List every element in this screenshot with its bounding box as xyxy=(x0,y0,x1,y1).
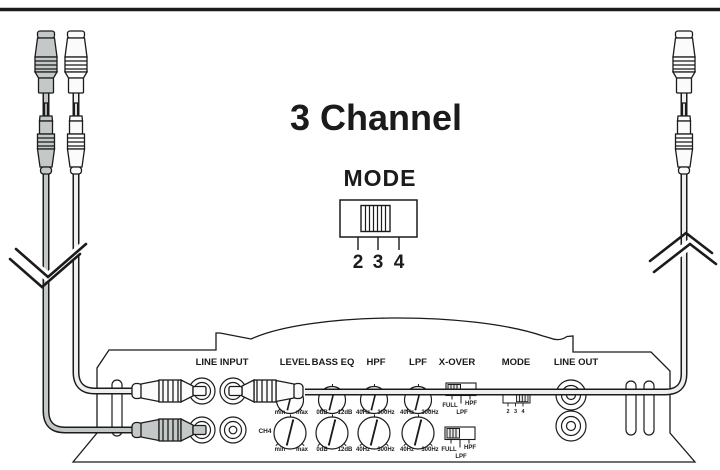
left-white-cable-run xyxy=(76,33,134,391)
mode-pos-3: 3 xyxy=(373,252,384,273)
hpf-top-min: 40Hz xyxy=(356,410,370,416)
hpf-top-max: 300Hz xyxy=(377,410,394,416)
line-out-label: LINE OUT xyxy=(554,357,599,368)
bass-bot-max: 12dB xyxy=(338,447,353,453)
source-right-plug-icon xyxy=(673,31,695,93)
bass-eq-label: BASS EQ xyxy=(312,357,355,368)
source-white-plug-icon xyxy=(65,31,87,93)
xover-bot-hpf: HPF xyxy=(464,445,476,451)
xover-bot-full: FULL xyxy=(441,447,457,453)
level-top-max: max xyxy=(296,410,309,416)
mode-panel-pos-3: 3 xyxy=(514,409,517,415)
lpf-bot-min: 40Hz xyxy=(400,447,414,453)
bass-top-max: 12dB xyxy=(338,410,353,416)
mode-pos-2: 2 xyxy=(353,252,364,273)
bass-top-min: 0dB xyxy=(316,410,328,416)
xover-top-lpf: LPF xyxy=(456,410,468,416)
hpf-bot-max: 300Hz xyxy=(377,447,394,453)
mode-pos-4: 4 xyxy=(394,252,405,273)
amp-right-male-plug-icon xyxy=(676,103,693,174)
xover-top-hpf: HPF xyxy=(465,401,477,407)
amp-white-male-plug-icon xyxy=(68,103,85,174)
line-input-jack-ch4 xyxy=(220,417,246,443)
wiring-diagram-page: LINE INPUT LEVEL BASS EQ HPF LPF X-OVER … xyxy=(0,0,720,470)
lpf-top-min: 40Hz xyxy=(400,410,414,416)
hpf-label: HPF xyxy=(367,357,386,368)
xover-bot-lpf: LPF xyxy=(455,454,467,460)
lpf-label: LPF xyxy=(409,357,427,368)
level-label: LEVEL xyxy=(280,357,311,368)
xover-label: X-OVER xyxy=(439,357,476,368)
lpf-bot-max: 300Hz xyxy=(421,447,438,453)
amp-gray-male-plug-icon xyxy=(38,103,55,174)
level-bot-min: min xyxy=(275,447,286,453)
line-out-jack-bottom xyxy=(556,411,586,441)
hpf-bot-min: 40Hz xyxy=(356,447,370,453)
lpf-top-max: 300Hz xyxy=(421,410,438,416)
mode-selector-detail: MODE 2 3 4 xyxy=(340,165,417,273)
line-input-label: LINE INPUT xyxy=(196,357,249,368)
mode-panel-pos-2: 2 xyxy=(506,409,509,415)
mode-selector-heading: MODE xyxy=(344,165,417,191)
diagram-title: 3 Channel xyxy=(290,97,462,138)
diagram-canvas: LINE INPUT LEVEL BASS EQ HPF LPF X-OVER … xyxy=(0,0,720,470)
level-bot-max: max xyxy=(296,447,309,453)
source-gray-plug-icon xyxy=(35,31,57,93)
bass-bot-min: 0dB xyxy=(316,447,328,453)
mode-label: MODE xyxy=(502,357,531,368)
xover-top-full: FULL xyxy=(442,403,458,409)
mode-selector-knob xyxy=(361,206,390,232)
ch4-jack-label: CH4 xyxy=(258,428,271,435)
level-top-min: min xyxy=(275,410,286,416)
